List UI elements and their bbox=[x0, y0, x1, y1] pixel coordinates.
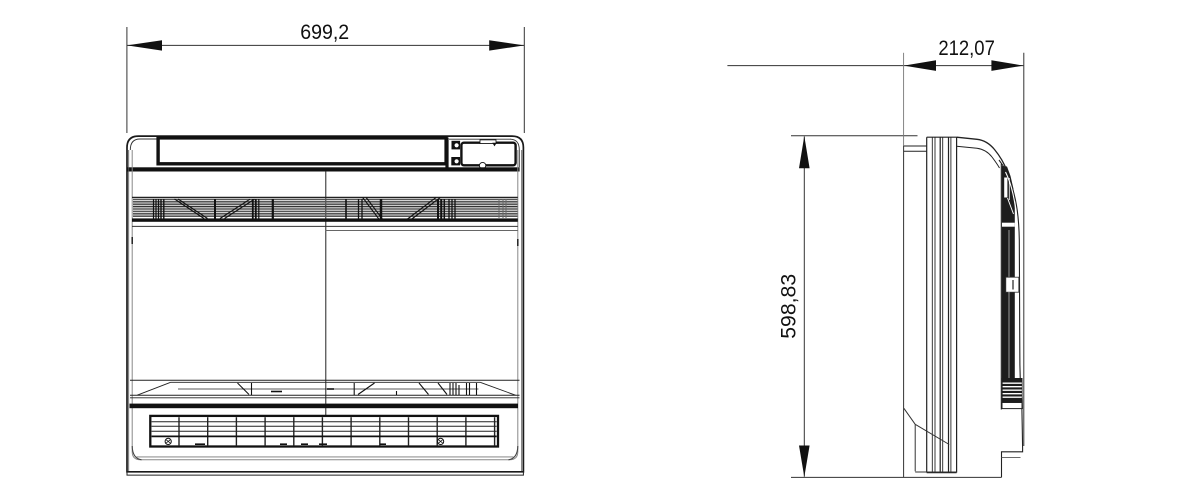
svg-text:699,2: 699,2 bbox=[300, 20, 349, 44]
svg-text:598,83: 598,83 bbox=[777, 274, 801, 339]
svg-text:212,07: 212,07 bbox=[938, 36, 995, 60]
